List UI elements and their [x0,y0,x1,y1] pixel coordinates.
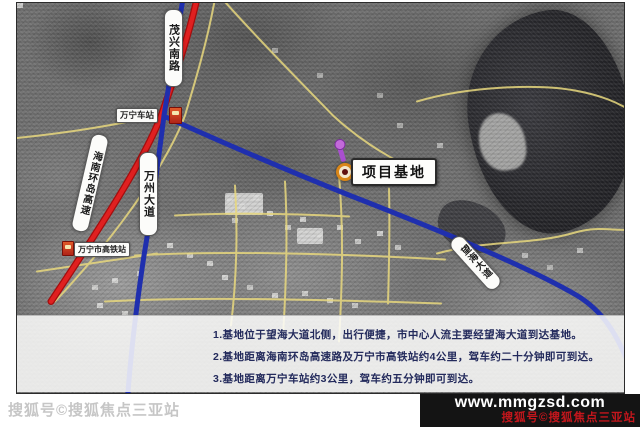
watermark-site-box: www.mmgzsd.com 搜狐号©搜狐焦点三亚站 [420,394,640,427]
location-info-box: 1.基地位于望海大道北侧，出行便捷，市中心人流主要经望海大道到达基地。 2.基地… [17,315,624,392]
watermark-bottom-left: 搜狐号©搜狐焦点三亚站 [8,399,180,420]
road-label-maoxing-south-road: 茂兴南路 [164,9,183,87]
watermark-site-url: www.mmgzsd.com [420,394,640,411]
info-line-2: 2.基地距离海南环岛高速路及万宁市高铁站约4公里，驾车约二十分钟即可到达。 [213,346,616,368]
road-label-text: 万州大道 [141,170,157,218]
info-line-3: 3.基地距离万宁车站约3公里，驾车约五分钟即可到达。 [213,368,616,390]
watermark-site-caption: 搜狐号©搜狐焦点三亚站 [420,411,640,425]
satellite-map: 茂兴南路 海南环岛高速 万州大道 望海大道 万宁车站 万宁市高铁站 项目基地 1… [16,2,625,394]
info-line-1: 1.基地位于望海大道北侧，出行便捷，市中心人流主要经望海大道到达基地。 [213,324,616,346]
project-base-label: 项目基地 [351,158,437,186]
minor-roads-yellow [17,3,624,342]
label-wanning-railway-station: 万宁车站 [116,108,158,123]
hsr-station-icon [62,241,74,256]
road-label-wanzhou-avenue: 万州大道 [139,152,158,236]
road-label-text: 茂兴南路 [166,24,182,72]
label-wanning-hsr-station: 万宁市高铁站 [74,242,130,257]
railway-station-icon [169,107,182,124]
